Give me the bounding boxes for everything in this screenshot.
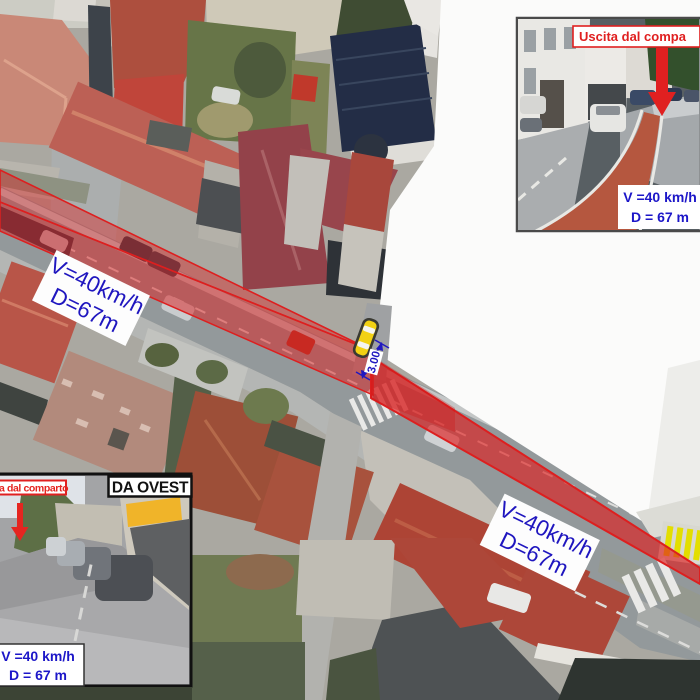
svg-text:V =40 km/h: V =40 km/h [1, 648, 75, 664]
svg-text:V =40 km/h: V =40 km/h [623, 189, 697, 205]
svg-text:Uscita dal compa: Uscita dal compa [579, 29, 687, 44]
svg-text:D = 67 m: D = 67 m [631, 209, 689, 225]
svg-text:a dal comparto: a dal comparto [0, 483, 68, 495]
svg-text:DA OVEST: DA OVEST [112, 480, 189, 497]
svg-text:D = 67 m: D = 67 m [9, 667, 67, 683]
